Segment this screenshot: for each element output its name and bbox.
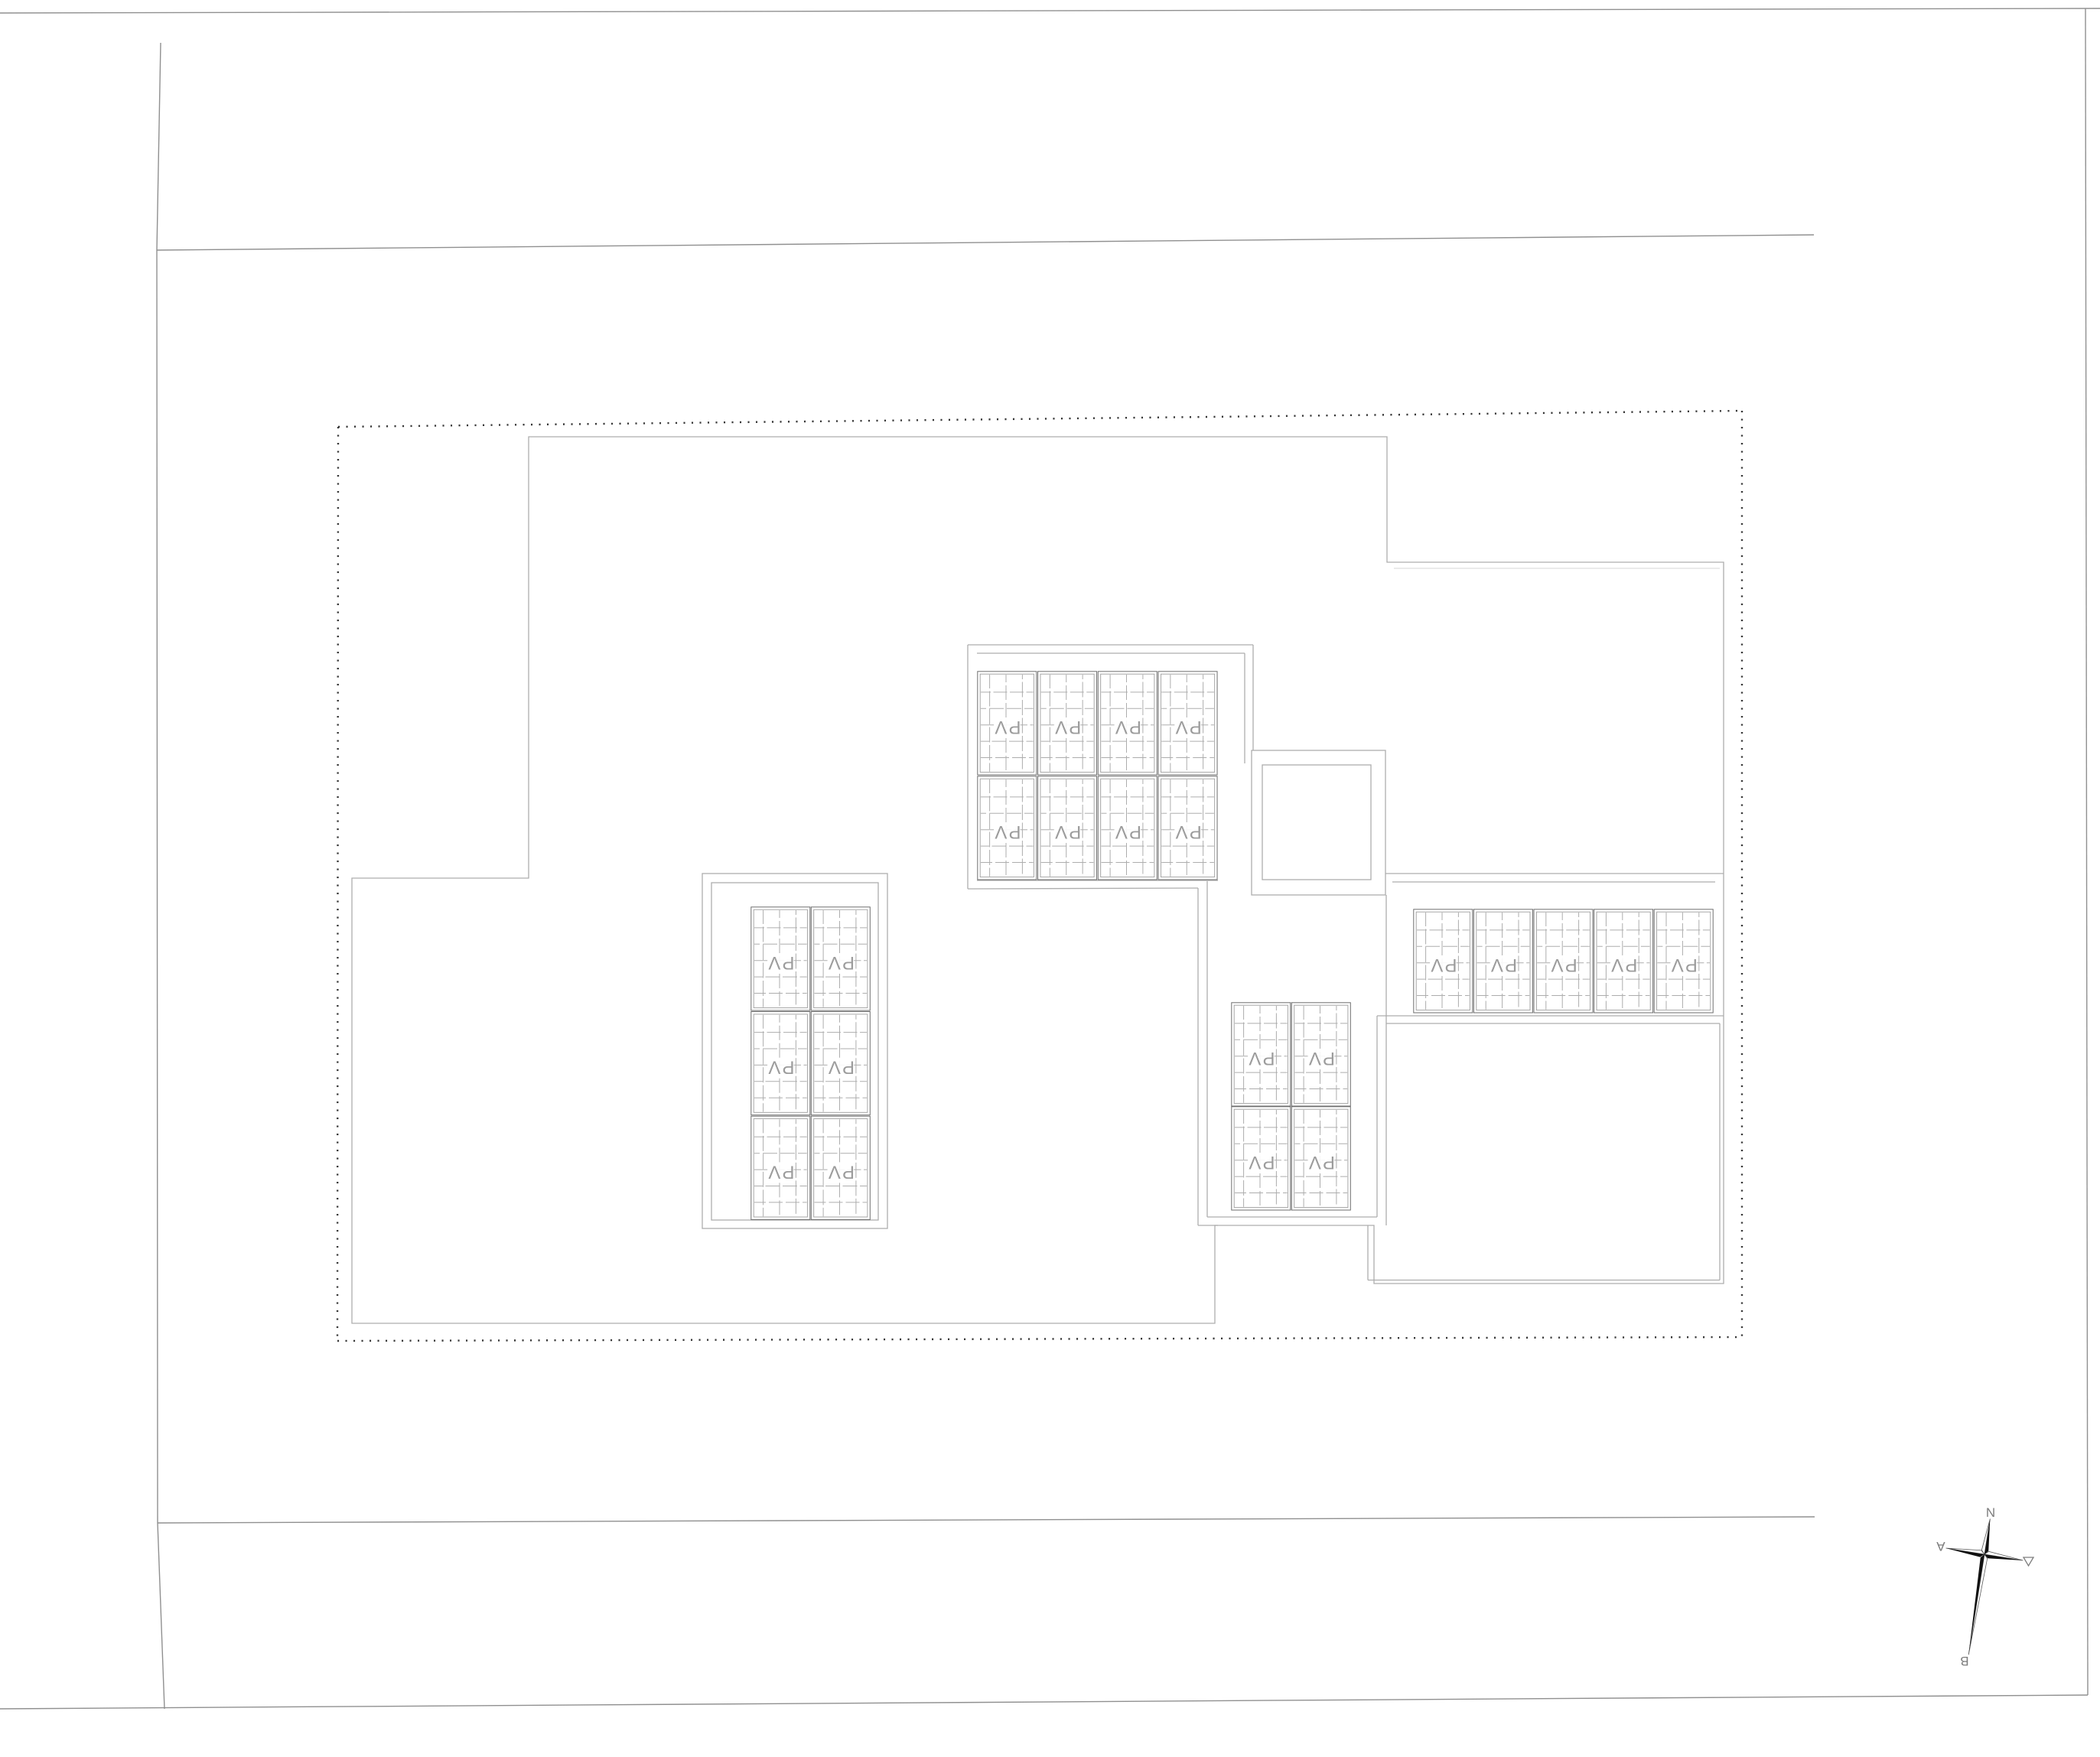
svg-text:N: N (1986, 1505, 1995, 1520)
svg-text:B: B (1960, 1654, 1968, 1668)
svg-text:A: A (1936, 1539, 1945, 1554)
